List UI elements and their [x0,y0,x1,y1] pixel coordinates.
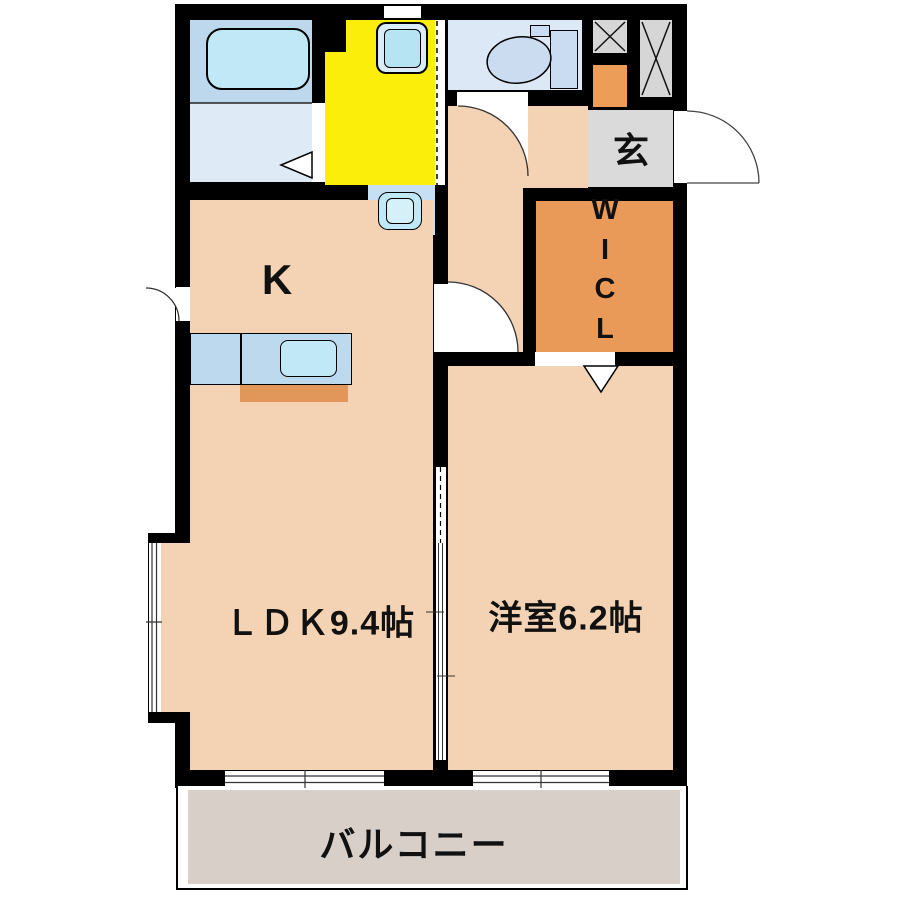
entrance-door-swing [687,111,759,183]
wicl-door-opening [535,352,615,366]
entrance-door-opening [674,111,687,183]
bay-window-bottom-wall [148,712,190,723]
washbasin-bowl-icon [386,198,414,224]
washer-icon [384,29,421,68]
bay-window-floor [160,543,190,712]
western-balcony-window [473,771,609,786]
toilet-flush-icon [530,25,550,37]
pipe-shaft-small [593,20,627,53]
bay-window-top-wall [148,533,190,543]
ldk-label: ＬＤＫ9.4帖 [225,596,415,645]
side-door-opening [176,287,190,321]
bay-window-glass [148,543,161,712]
ldk-hall-door-opening [434,284,448,352]
genkan-label: 玄 [613,122,649,174]
hallway-floor [448,106,523,352]
ldk-floor [190,200,433,770]
shoe-cabinet [593,65,627,107]
kitchen-sink-icon [280,340,337,377]
kitchen-counter-strip [240,385,348,402]
wicl-letter: L [596,315,614,344]
bathtub-icon [206,28,310,90]
toilet-tank-icon [550,30,578,89]
balcony-label: バルコニー [319,816,508,868]
hallway-upper-floor [523,106,588,188]
wicl-letter: W [591,196,618,225]
floor-plan: K ＬＤＫ9.4帖 洋室6.2帖 玄 W I C L バルコニー [0,0,900,900]
partition-hanging-wall [436,467,446,543]
western-room-label: 洋室6.2帖 [488,591,643,640]
washroom-corner-wall [325,20,346,52]
wicl-letter: I [601,236,609,265]
bathroom-door-opening [312,103,325,182]
bathroom-washing-floor [190,103,312,182]
washroom-sliding-door [435,20,445,185]
ldk-balcony-window [225,771,384,786]
western-room-floor [448,366,673,770]
kitchen-counter-divider [240,333,242,385]
pipe-shaft-large [640,20,672,97]
washroom-top-window [383,6,422,18]
entrance-door-arc [687,111,759,183]
kitchen-label: K [262,256,292,304]
toilet-door-opening [457,92,528,106]
wicl-label: W I C L [586,196,624,344]
partition-sliding-door [436,543,446,760]
wicl-letter: C [595,275,616,304]
